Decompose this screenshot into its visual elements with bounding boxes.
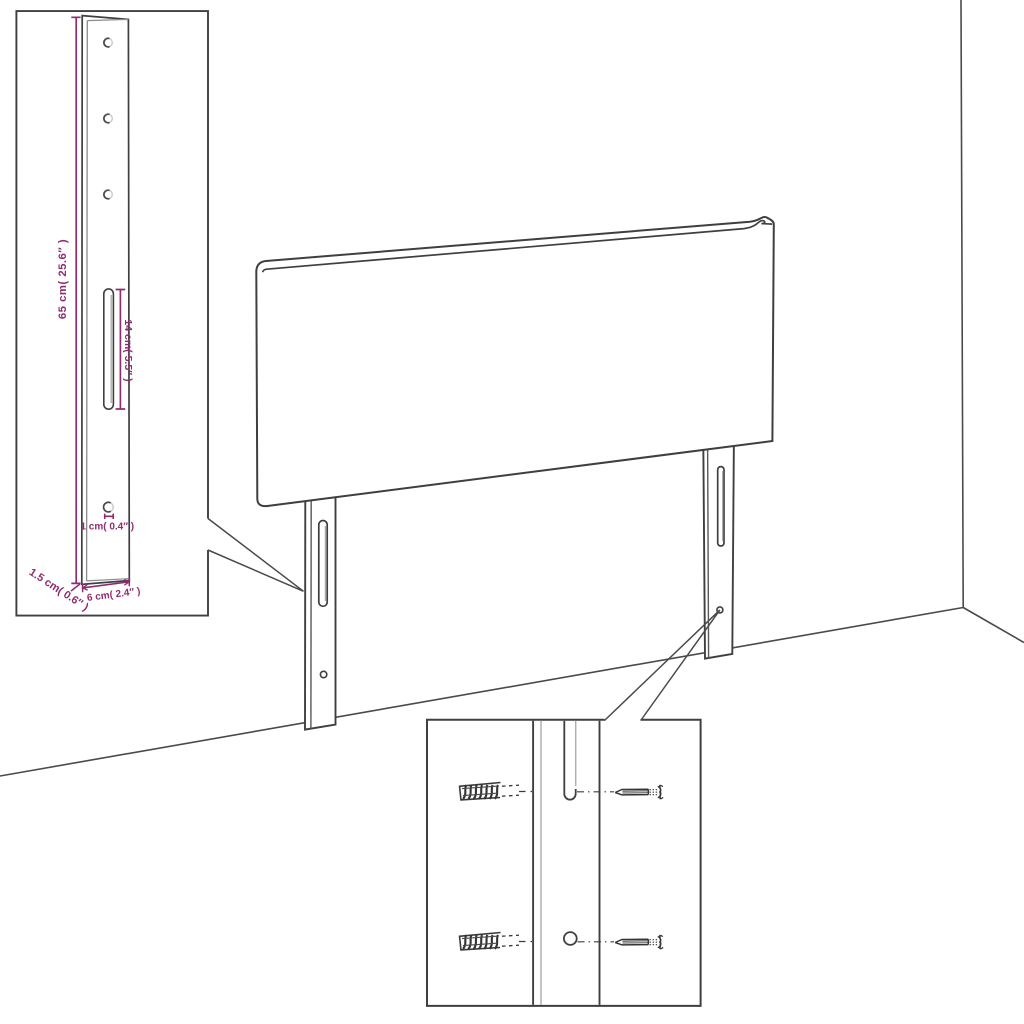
svg-text:1 cm( 0.4″ ): 1 cm( 0.4″ ): [80, 522, 134, 533]
svg-text:14 cm( 5.5″ ): 14 cm( 5.5″ ): [122, 319, 134, 381]
svg-text:65 cm( 25.6″ ): 65 cm( 25.6″ ): [57, 239, 69, 319]
